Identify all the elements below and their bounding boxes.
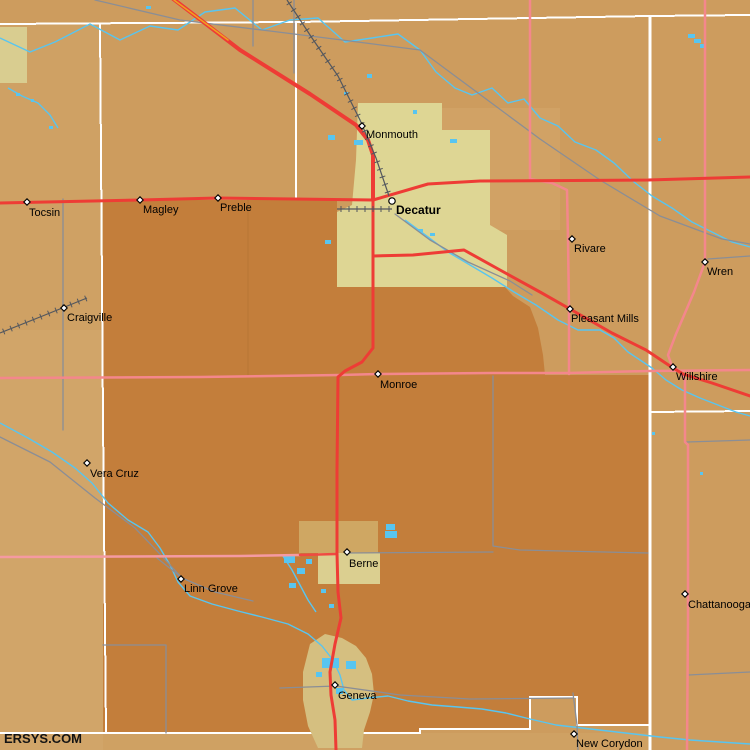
- lake: [694, 39, 701, 43]
- town-label-geneva: Geneva: [338, 690, 377, 702]
- town-label-magley: Magley: [143, 204, 179, 216]
- lake: [688, 34, 695, 38]
- bottom-strip-region: [103, 733, 650, 750]
- town-label-willshire: Willshire: [676, 371, 718, 383]
- lake: [652, 432, 655, 435]
- lake: [700, 472, 703, 475]
- lake: [450, 139, 457, 143]
- lake: [430, 233, 435, 236]
- town-label-craigville: Craigville: [67, 312, 112, 324]
- lake: [31, 99, 34, 102]
- lake: [329, 604, 334, 608]
- lake: [306, 559, 312, 564]
- lake: [367, 74, 372, 78]
- lake: [413, 110, 417, 114]
- lake: [658, 138, 661, 141]
- town-label-monroe: Monroe: [380, 379, 417, 391]
- lake: [346, 661, 356, 669]
- town-label-rivare: Rivare: [574, 243, 606, 255]
- lake: [321, 589, 326, 593]
- town-label-berne: Berne: [349, 558, 378, 570]
- town-label-wren: Wren: [707, 266, 733, 278]
- town-label-vera-cruz: Vera Cruz: [90, 468, 139, 480]
- town-label-pleasant-mills: Pleasant Mills: [571, 313, 639, 325]
- watermark: ERSYS.COM: [4, 731, 82, 746]
- lake: [385, 531, 397, 538]
- lake: [284, 556, 295, 563]
- lake: [386, 524, 395, 530]
- lake: [328, 135, 335, 140]
- town-marker-decatur: [389, 198, 395, 204]
- lake: [297, 568, 305, 574]
- town-label-tocsin: Tocsin: [29, 207, 60, 219]
- town-label-linn-grove: Linn Grove: [184, 583, 238, 595]
- berne-west-stub-road: [300, 554, 337, 555]
- map-root: MonmouthDecaturTocsinMagleyPrebleCraigvi…: [0, 0, 750, 750]
- town-label-preble: Preble: [220, 202, 252, 214]
- lake: [325, 240, 331, 244]
- town-label-new-corydon: New Corydon: [576, 738, 643, 750]
- lake: [16, 93, 20, 96]
- lake: [316, 672, 322, 677]
- west-strip-region: [0, 330, 103, 750]
- lake: [289, 583, 296, 588]
- town-label-decatur: Decatur: [396, 203, 441, 217]
- town-label-monmouth: Monmouth: [366, 129, 418, 141]
- town-label-chattanooga: Chattanooga: [688, 599, 750, 611]
- berne-north-block-area: [299, 521, 378, 553]
- map-canvas[interactable]: MonmouthDecaturTocsinMagleyPrebleCraigvi…: [0, 0, 750, 750]
- lake: [49, 126, 53, 129]
- lake: [146, 6, 151, 9]
- pale-block-nw-region: [0, 27, 27, 83]
- lake: [354, 140, 363, 145]
